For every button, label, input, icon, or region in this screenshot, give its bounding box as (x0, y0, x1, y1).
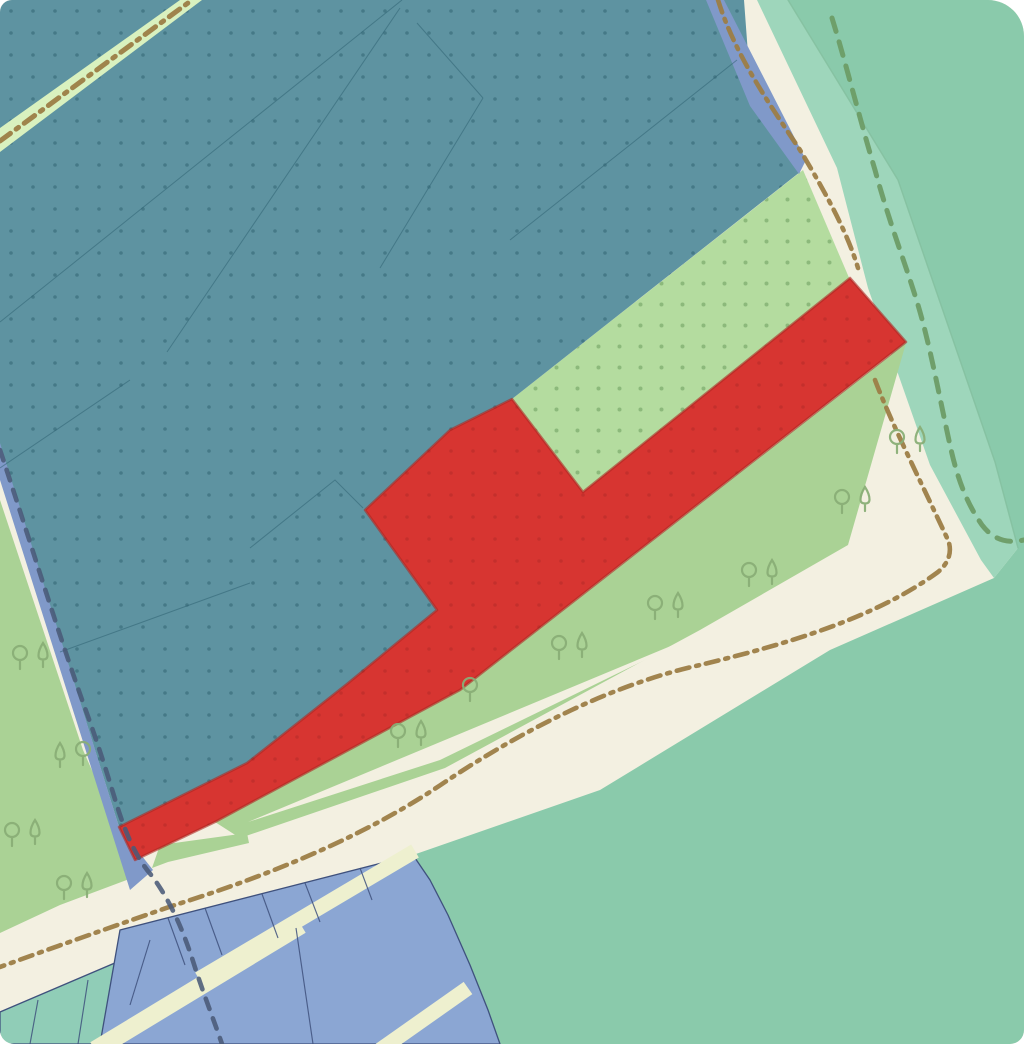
map-image (0, 0, 1024, 1044)
map-canvas[interactable] (0, 0, 1024, 1044)
